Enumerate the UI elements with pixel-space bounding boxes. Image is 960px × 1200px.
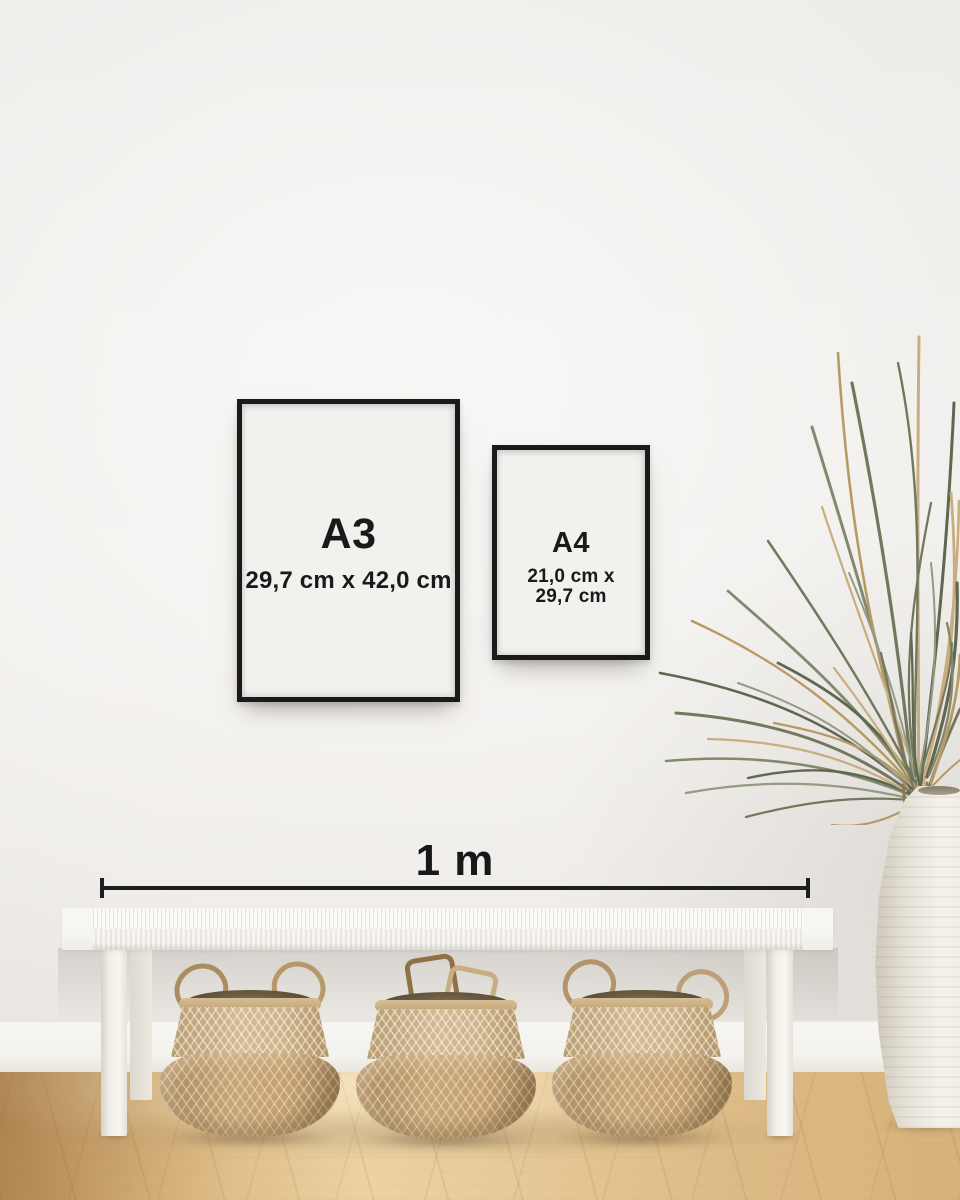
bench-leg-rear-right bbox=[744, 948, 766, 1100]
poster-size-guide-scene: A3 29,7 cm x 42,0 cm A4 21,0 cm x 29,7 c… bbox=[0, 0, 960, 1200]
vase-mouth bbox=[918, 786, 960, 795]
scale-tick-right bbox=[806, 878, 810, 898]
poster-a4-title: A4 bbox=[527, 529, 614, 558]
bench-endcap-left bbox=[62, 908, 92, 950]
poster-a3-title: A3 bbox=[245, 513, 451, 556]
bench-seat-weave-top bbox=[62, 908, 833, 929]
wicker-basket-2 bbox=[356, 962, 536, 1150]
wicker-basket-3 bbox=[552, 960, 732, 1148]
scale-tick-left bbox=[100, 878, 104, 898]
bench-endcap-right bbox=[803, 908, 833, 950]
poster-a3-text: A3 29,7 cm x 42,0 cm bbox=[245, 513, 451, 595]
poster-a4-dimensions-line1: 21,0 cm x bbox=[527, 567, 614, 587]
basket-2-lower-body bbox=[356, 1055, 536, 1139]
bench-seat bbox=[62, 908, 833, 950]
basket-2-upper-body bbox=[367, 1009, 525, 1059]
poster-a3-dimensions: 29,7 cm x 42,0 cm bbox=[245, 567, 451, 595]
bench-leg-front-right bbox=[767, 948, 793, 1136]
poster-frame-a4: A4 21,0 cm x 29,7 cm bbox=[492, 445, 650, 660]
bench-seat-weave-front bbox=[62, 929, 833, 950]
poster-a4-dimensions: 21,0 cm x 29,7 cm bbox=[527, 567, 614, 607]
wicker-basket-1 bbox=[160, 960, 340, 1148]
basket-3-upper-body bbox=[563, 1007, 721, 1057]
basket-1-lower-body bbox=[160, 1053, 340, 1137]
scale-line bbox=[102, 886, 808, 890]
scale-label: 1 m bbox=[102, 836, 808, 886]
poster-frame-a3: A3 29,7 cm x 42,0 cm bbox=[237, 399, 460, 702]
basket-3-lower-body bbox=[552, 1053, 732, 1137]
dried-palm-plant bbox=[600, 325, 960, 825]
basket-1-upper-body bbox=[171, 1007, 329, 1057]
bench-leg-rear-left bbox=[130, 948, 152, 1100]
poster-a4-text: A4 21,0 cm x 29,7 cm bbox=[527, 529, 614, 607]
poster-a4-dimensions-line2: 29,7 cm bbox=[527, 587, 614, 607]
bench-leg-front-left bbox=[101, 948, 127, 1136]
